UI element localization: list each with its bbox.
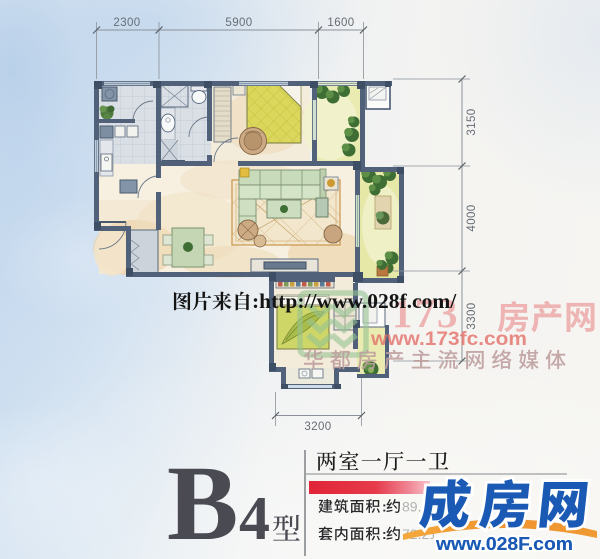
svg-text::: : — [382, 499, 387, 515]
svg-text::: : — [382, 526, 387, 542]
svg-text:www.173fc.com: www.173fc.com — [370, 329, 527, 350]
svg-text:B: B — [167, 445, 238, 559]
svg-text:4000: 4000 — [466, 204, 478, 231]
svg-text::http://www.028f.com/: :http://www.028f.com/ — [252, 289, 457, 313]
svg-text:3150: 3150 — [466, 108, 478, 135]
svg-text:1600: 1600 — [327, 17, 354, 29]
svg-text:www.028F.com: www.028F.com — [435, 534, 573, 554]
svg-text:3200: 3200 — [304, 421, 331, 433]
svg-text:2300: 2300 — [113, 17, 140, 29]
svg-text:4: 4 — [239, 485, 270, 553]
svg-text:3300: 3300 — [466, 302, 478, 329]
svg-text:5900: 5900 — [225, 17, 252, 29]
